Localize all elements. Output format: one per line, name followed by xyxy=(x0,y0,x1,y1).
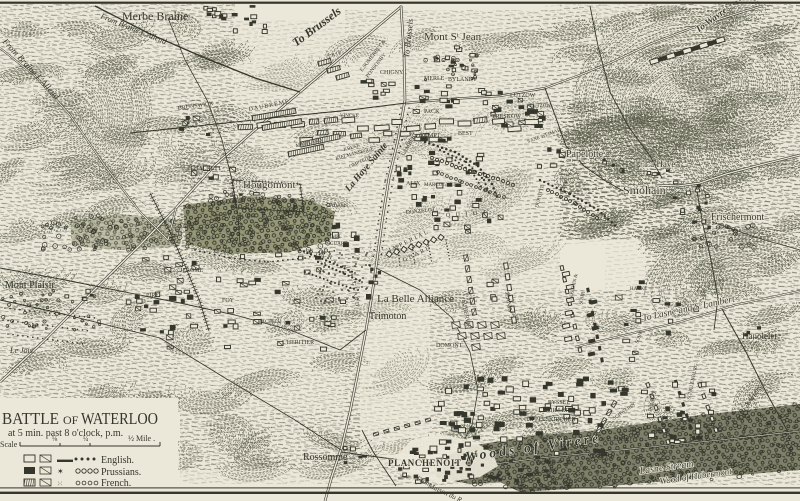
svg-text:Prussians.: Prussians. xyxy=(101,467,141,478)
svg-text:RYSSEL: RYSSEL xyxy=(548,400,570,406)
svg-text:⁙: ⁙ xyxy=(57,480,63,488)
svg-text:BEST: BEST xyxy=(458,131,473,137)
svg-text:IMPL: IMPL xyxy=(330,235,342,240)
svg-text:Mont Sᵗ Jean: Mont Sᵗ Jean xyxy=(424,31,482,43)
svg-text:ADAMS: ADAMS xyxy=(330,204,348,209)
svg-text:ALIX: ALIX xyxy=(406,181,421,187)
svg-text:Trimoton: Trimoton xyxy=(369,311,406,322)
svg-text:La Belle Alliance: La Belle Alliance xyxy=(377,293,454,305)
svg-text:½ Mile .: ½ Mile . xyxy=(128,434,155,443)
svg-text:L'HERITIER: L'HERITIER xyxy=(282,340,314,346)
svg-text:TIPPELSKIRCHEN: TIPPELSKIRCHEN xyxy=(526,417,576,423)
svg-text:Smohain: Smohain xyxy=(623,183,666,197)
svg-text:BATTLE: BATTLE xyxy=(2,409,59,428)
svg-text:at 5 min. past 8 o'clock, p.m.: at 5 min. past 8 o'clock, p.m. xyxy=(8,428,123,439)
svg-text:Hougomont: Hougomont xyxy=(243,179,296,191)
svg-text:Mont Plaisir: Mont Plaisir xyxy=(5,280,55,291)
svg-text:WATERLOO: WATERLOO xyxy=(81,409,158,428)
svg-text:PACK: PACK xyxy=(424,109,440,115)
svg-text:HACKE: HACKE xyxy=(630,287,647,292)
svg-text:TRESKOW: TRESKOW xyxy=(492,114,521,120)
svg-text:Le Jois: Le Jois xyxy=(9,346,33,355)
svg-text:English.: English. xyxy=(101,455,134,466)
svg-text:OF: OF xyxy=(63,413,79,427)
svg-text:VINCKE: VINCKE xyxy=(340,114,359,119)
svg-text:JEROME: JEROME xyxy=(180,268,204,274)
svg-text:KEMPT: KEMPT xyxy=(420,133,441,139)
svg-text:Merbe Braine: Merbe Braine xyxy=(122,9,188,23)
svg-text:LUTZOW: LUTZOW xyxy=(510,93,536,99)
svg-text:Hanolelet: Hanolelet xyxy=(742,331,777,341)
svg-text:B Y N G: B Y N G xyxy=(216,214,258,220)
svg-text:⊦La Haye: ⊦La Haye xyxy=(640,159,675,169)
svg-text:PLANCHENOIT: PLANCHENOIT xyxy=(388,458,462,468)
svg-text:FOY: FOY xyxy=(222,298,235,304)
svg-text:French.: French. xyxy=(101,478,131,489)
svg-text:CHIGNY: CHIGNY xyxy=(380,70,404,76)
svg-text:H.HALKETT: H.HALKETT xyxy=(188,166,222,172)
svg-text:MERLE: MERLE xyxy=(424,76,445,82)
svg-text:GUARD: GUARD xyxy=(330,242,348,247)
svg-text:Scale: Scale xyxy=(0,440,18,449)
svg-text:Papelotte: Papelotte xyxy=(566,149,604,160)
svg-text:DOMONT: DOMONT xyxy=(436,343,463,349)
svg-text:HILLER &: HILLER & xyxy=(548,408,576,414)
svg-text:MARCOGNET: MARCOGNET xyxy=(424,183,456,188)
svg-text:Frischermont: Frischermont xyxy=(711,212,765,223)
svg-text:BYLANDT: BYLANDT xyxy=(448,77,477,83)
svg-text:¼: ¼ xyxy=(83,435,88,443)
svg-text:WALZDORF: WALZDORF xyxy=(600,437,633,443)
svg-text:▬▬: ▬▬ xyxy=(57,455,73,464)
svg-text:Rossomme: Rossomme xyxy=(303,452,348,463)
svg-text:⅛: ⅛ xyxy=(52,435,58,443)
svg-text:LUTZOW: LUTZOW xyxy=(530,104,551,109)
svg-text:BACHELU: BACHELU xyxy=(258,320,282,325)
svg-text:✶: ✶ xyxy=(57,467,64,476)
svg-text:SYDOW: SYDOW xyxy=(560,444,582,450)
svg-text:PIRE: PIRE xyxy=(146,293,159,299)
